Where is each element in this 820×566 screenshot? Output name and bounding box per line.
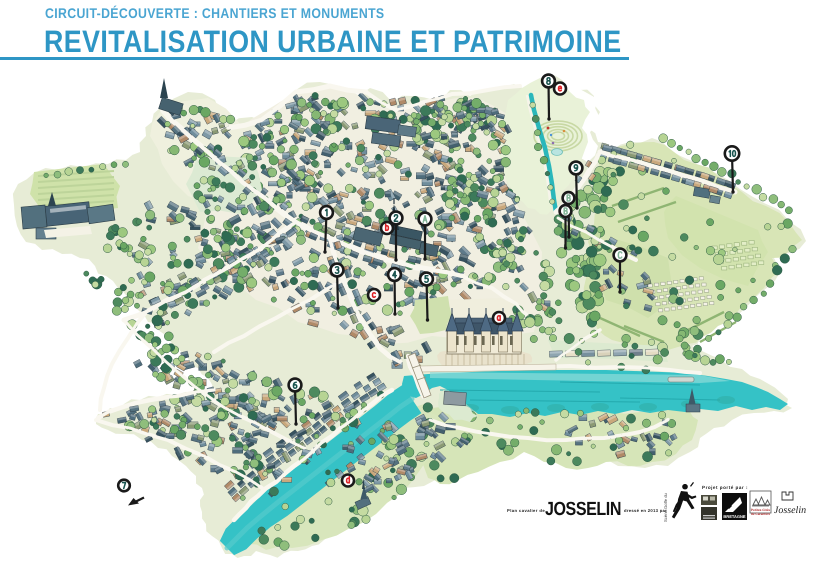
svg-text:Projet porté par :: Projet porté par : bbox=[702, 485, 748, 490]
svg-text:Josselin: Josselin bbox=[774, 505, 806, 516]
svg-text:BRETAGNE: BRETAGNE bbox=[723, 514, 745, 519]
svg-text:de Caractère: de Caractère bbox=[751, 512, 771, 516]
svg-text:Scène Golfe du: Scène Golfe du bbox=[663, 492, 668, 522]
svg-text:JOSSELIN: JOSSELIN bbox=[545, 499, 621, 520]
svg-text:dressé en 2013 par: dressé en 2013 par bbox=[624, 508, 667, 513]
svg-text:Plan cavalier de: Plan cavalier de bbox=[507, 508, 545, 513]
